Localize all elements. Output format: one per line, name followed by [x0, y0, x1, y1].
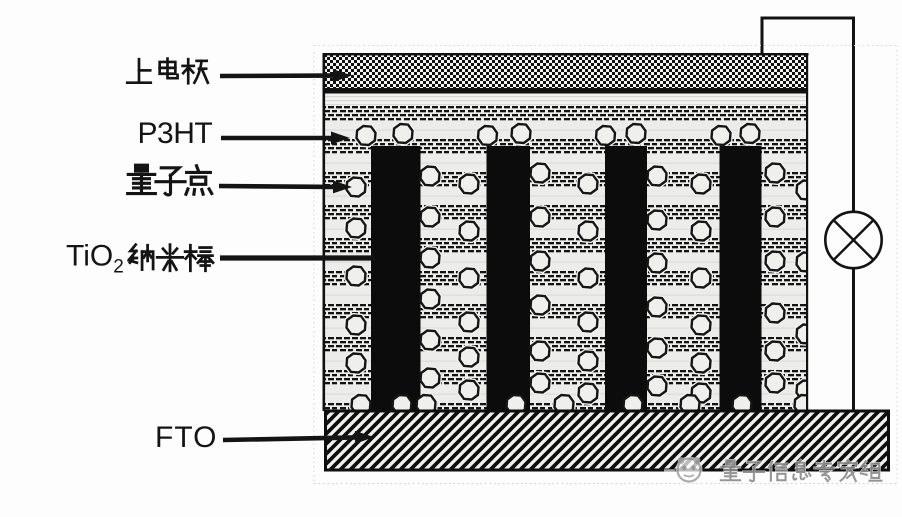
svg-text:P3HT: P3HT: [138, 117, 213, 150]
svg-text:FTO: FTO: [155, 421, 217, 454]
